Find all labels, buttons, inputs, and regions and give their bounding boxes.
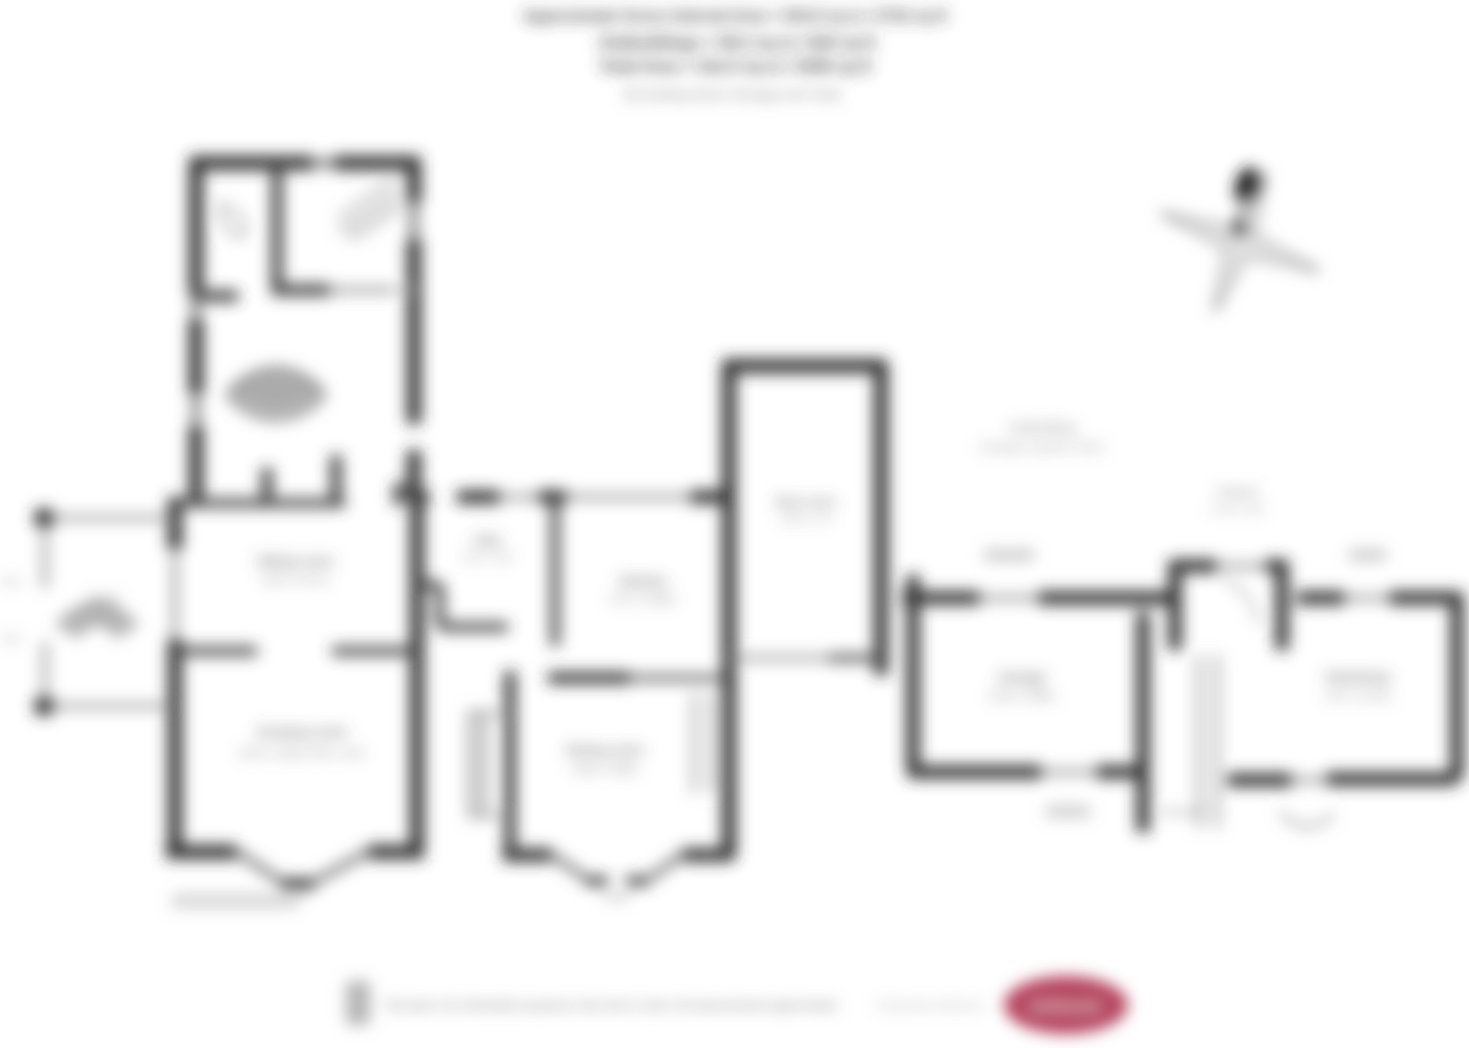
svg-text:4.62 x 4.27m: 4.62 x 4.27m bbox=[262, 575, 328, 587]
svg-text:4.27 x 3.66m: 4.27 x 3.66m bbox=[610, 594, 676, 606]
svg-text:6.93 x 4.62m 22'9 x 15'2: 6.93 x 4.62m 22'9 x 15'2 bbox=[240, 748, 365, 760]
svg-text:(Garage & garden store): (Garage & garden store) bbox=[980, 442, 1105, 454]
svg-text:Drawing room: Drawing room bbox=[257, 725, 347, 741]
svg-text:Kitchen: Kitchen bbox=[619, 574, 667, 590]
svg-text:Dining room: Dining room bbox=[566, 743, 644, 759]
svg-text:This plan is for illustration: This plan is for illustration purposes o… bbox=[384, 1000, 839, 1012]
svg-text:3.05 x 2.74: 3.05 x 2.74 bbox=[780, 513, 832, 525]
svg-text:Boot room: Boot room bbox=[776, 494, 836, 509]
svg-text:Sitting room: Sitting room bbox=[256, 554, 333, 570]
svg-text:nichecom: nichecom bbox=[1030, 998, 1100, 1015]
svg-text:Utility: Utility bbox=[472, 534, 503, 548]
svg-text:Workshop: Workshop bbox=[1325, 670, 1390, 686]
svg-text:Garage: Garage bbox=[998, 670, 1046, 686]
svg-text:(Excluding Eaves Storage And V: (Excluding Eaves Storage And Void) bbox=[624, 87, 841, 102]
svg-text:4.57 x 4.27m: 4.57 x 4.27m bbox=[1325, 691, 1391, 703]
svg-text:Carport: Carport bbox=[1216, 485, 1258, 499]
svg-text:Outbuildings = 58.2 sq m / 626: Outbuildings = 58.2 sq m / 626 sq ft bbox=[599, 34, 876, 52]
svg-text:Porch: Porch bbox=[90, 594, 120, 606]
svg-text:5.49 x 4.88: 5.49 x 4.88 bbox=[1211, 504, 1263, 516]
svg-text:Outbuilding: Outbuilding bbox=[1008, 420, 1076, 435]
svg-text:Total Area = 312.0 sq m / 3358: Total Area = 312.0 sq m / 3358 sq ft bbox=[599, 58, 871, 76]
svg-text:Approximate Gross Internal Are: Approximate Gross Internal Area = 253.8 … bbox=[523, 8, 947, 25]
svg-text:Produced by Nichecom: Produced by Nichecom bbox=[876, 1000, 985, 1012]
svg-text:5.49 x 4.88m: 5.49 x 4.88m bbox=[989, 691, 1055, 703]
svg-text:2.41 x 1.91: 2.41 x 1.91 bbox=[461, 552, 513, 564]
svg-text:4.88 x 3.96m: 4.88 x 3.96m bbox=[572, 764, 638, 776]
